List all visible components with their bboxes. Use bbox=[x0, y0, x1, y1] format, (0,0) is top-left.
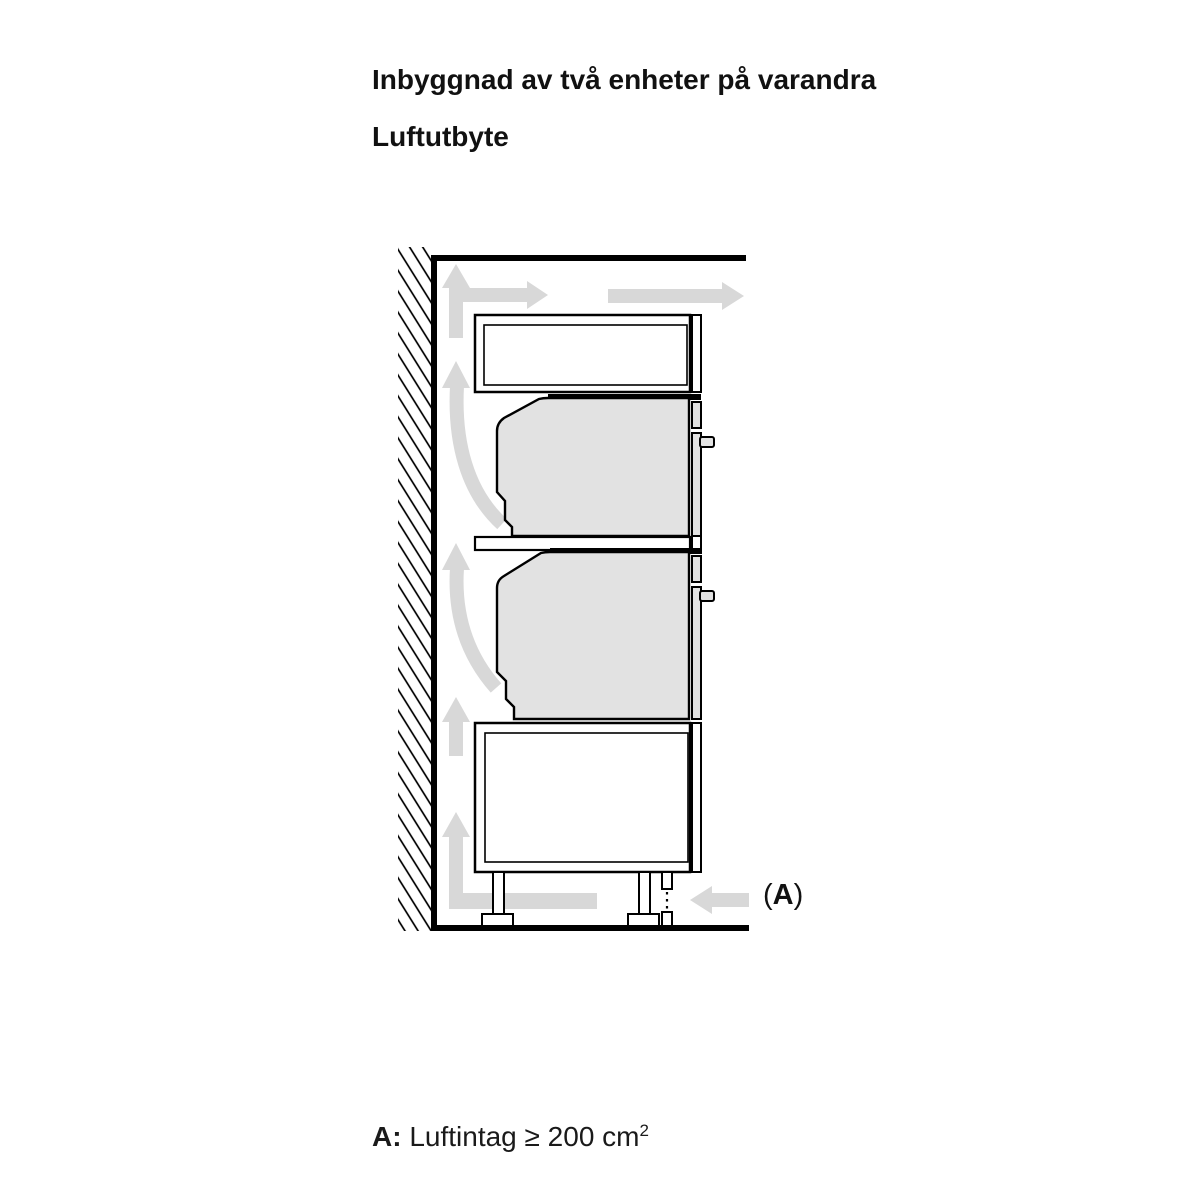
upper-oven-body bbox=[497, 398, 689, 536]
front-frame-strip-top bbox=[692, 315, 701, 392]
marker-a-paren-open: ( bbox=[763, 879, 773, 911]
airflow-right-arrow-outer bbox=[608, 282, 744, 310]
ceiling-line bbox=[431, 255, 746, 261]
marker-a-letter: A bbox=[773, 879, 794, 911]
lower-oven-door bbox=[692, 587, 701, 719]
legend-text: Luftintag ≥ 200 cm bbox=[402, 1121, 640, 1152]
front-frame-strip-base bbox=[692, 723, 701, 872]
marker-a-label: (A) bbox=[763, 878, 803, 913]
legend-superscript: 2 bbox=[640, 1121, 649, 1140]
upper-oven-handle bbox=[700, 437, 714, 447]
manual-page: Inbyggnad av två enheter på varandra Luf… bbox=[0, 0, 1200, 1200]
wall-line bbox=[431, 255, 437, 931]
base-cabinet-outer bbox=[475, 723, 690, 872]
lower-oven-control-panel bbox=[692, 556, 701, 582]
airflow-intake-arrow-a bbox=[690, 886, 749, 914]
cabinet-foot-right bbox=[628, 914, 659, 926]
cabinet-foot-left bbox=[482, 914, 513, 926]
cabinet-leg-right bbox=[639, 872, 650, 915]
plinth-vent-lower bbox=[662, 912, 672, 926]
upper-oven-control-panel bbox=[692, 402, 701, 428]
wall-hatching bbox=[398, 247, 433, 931]
upper-oven bbox=[497, 394, 714, 536]
airflow-up-arrow-middle bbox=[442, 697, 470, 756]
lower-oven-body bbox=[497, 552, 689, 719]
lower-oven bbox=[497, 548, 714, 719]
legend-label: A: bbox=[372, 1121, 402, 1152]
top-vent-compartment-outer bbox=[475, 315, 690, 392]
cabinet-leg-left bbox=[493, 872, 504, 915]
upper-oven-door bbox=[692, 433, 701, 536]
airflow-curve-arrow-lower-oven bbox=[442, 543, 496, 688]
lower-oven-handle bbox=[700, 591, 714, 601]
legend: A: Luftintag ≥ 200 cm2 bbox=[372, 1120, 649, 1154]
installation-diagram bbox=[0, 0, 1200, 1200]
marker-a-paren-close: ) bbox=[794, 879, 804, 911]
floor-line bbox=[431, 925, 749, 931]
airflow-right-arrow-inner bbox=[456, 281, 548, 309]
plinth-vent-upper bbox=[662, 872, 672, 889]
